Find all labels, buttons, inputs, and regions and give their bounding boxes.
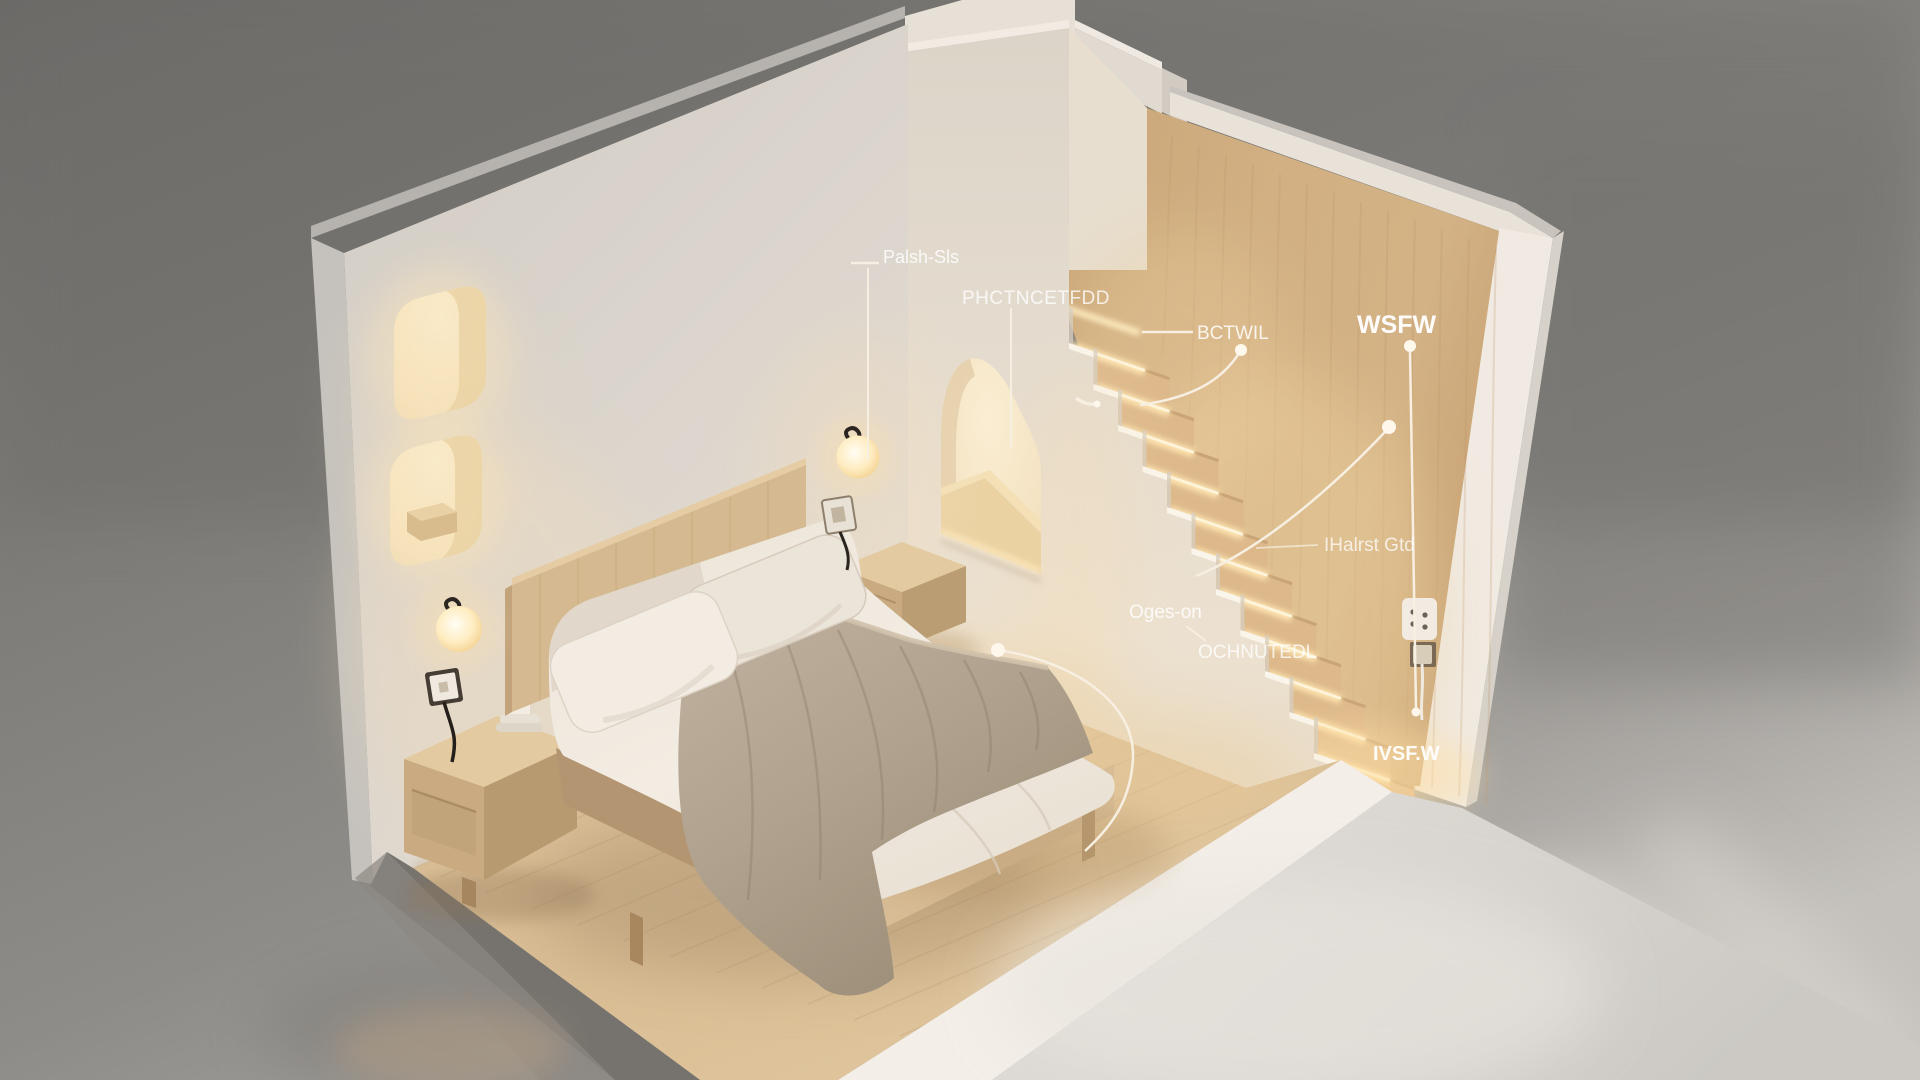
svg-text:BCTWIL: BCTWIL: [1197, 323, 1269, 344]
svg-text:Oges-on: Oges-on: [1129, 602, 1202, 623]
svg-text:Palsh-Sls: Palsh-Sls: [883, 247, 959, 267]
svg-text:OCHNUTEDL: OCHNUTEDL: [1198, 642, 1316, 663]
svg-text:IVSF.W: IVSF.W: [1373, 743, 1440, 765]
svg-text:PHCTNCETFDD: PHCTNCETFDD: [962, 288, 1110, 309]
svg-text:WSFW: WSFW: [1357, 311, 1437, 339]
svg-text:IHalrst Gtd: IHalrst Gtd: [1324, 535, 1415, 556]
